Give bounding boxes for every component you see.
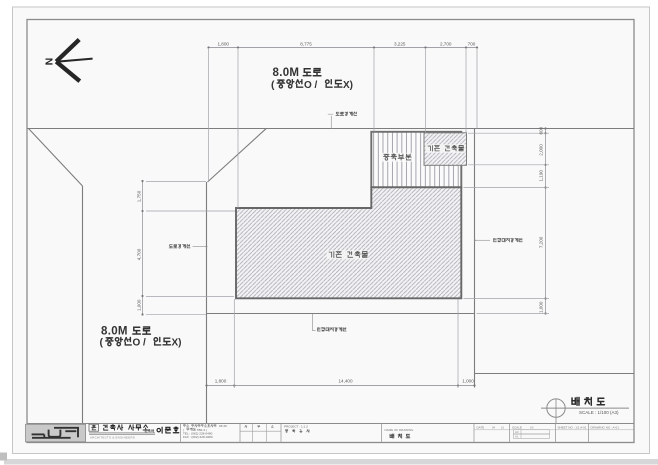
svg-text:ARCHITECTS & ENGINEERS: ARCHITECTS & ENGINEERS	[90, 436, 135, 440]
svg-text:PROJECT : 1:1.2: PROJECT : 1:1.2	[284, 425, 308, 429]
svg-text:(: (	[271, 79, 275, 91]
svg-text:SCALE : 1/100 (A3): SCALE : 1/100 (A3)	[579, 410, 619, 415]
svg-text:A3: A3	[530, 425, 534, 429]
svg-text:10: 10	[501, 425, 505, 429]
svg-text:8.0M: 8.0M	[273, 67, 300, 79]
svg-text:600: 600	[539, 126, 544, 134]
svg-text:DATE: DATE	[477, 425, 485, 429]
svg-text:8.0M: 8.0M	[101, 326, 128, 338]
svg-text:14,400: 14,400	[338, 379, 352, 384]
svg-text:1,800: 1,800	[215, 379, 227, 384]
svg-text:A1: A1	[515, 435, 519, 439]
svg-text:1,000: 1,000	[539, 301, 544, 313]
svg-text:SCALE: SCALE	[512, 425, 522, 429]
svg-text:2,700: 2,700	[440, 41, 452, 46]
svg-text:X): X)	[172, 338, 182, 349]
svg-text:2,000: 2,000	[539, 144, 544, 156]
svg-text:NAME OF DRAWING: NAME OF DRAWING	[385, 428, 415, 432]
svg-text:N: N	[42, 58, 54, 66]
svg-text:X): X)	[343, 80, 353, 91]
svg-text:O /: O /	[133, 338, 147, 349]
svg-text:1,750: 1,750	[136, 190, 141, 202]
svg-text:3,225: 3,225	[394, 41, 406, 46]
svg-text:700: 700	[468, 41, 476, 46]
svg-text:4,700: 4,700	[136, 248, 141, 260]
svg-text:1,000: 1,000	[136, 299, 141, 311]
svg-text:A3: A3	[515, 430, 519, 434]
svg-text:98 30: 98 30	[219, 424, 227, 428]
svg-text:1,800: 1,800	[217, 41, 229, 46]
svg-text:04: 04	[492, 425, 496, 429]
svg-text:1,000: 1,000	[462, 379, 474, 384]
svg-text:O /: O /	[304, 80, 318, 91]
svg-text:DRAWING NO : A-01: DRAWING NO : A-01	[591, 425, 620, 429]
svg-text:FAX : (062) 228-0480: FAX : (062) 228-0480	[183, 435, 213, 439]
svg-text:SHEET NO : 1/1 A-01: SHEET NO : 1/1 A-01	[558, 425, 587, 429]
svg-text:7,200: 7,200	[539, 236, 544, 248]
svg-text:(: (	[100, 337, 104, 349]
svg-text:1,190: 1,190	[539, 170, 544, 182]
svg-text:8,775: 8,775	[300, 41, 312, 46]
